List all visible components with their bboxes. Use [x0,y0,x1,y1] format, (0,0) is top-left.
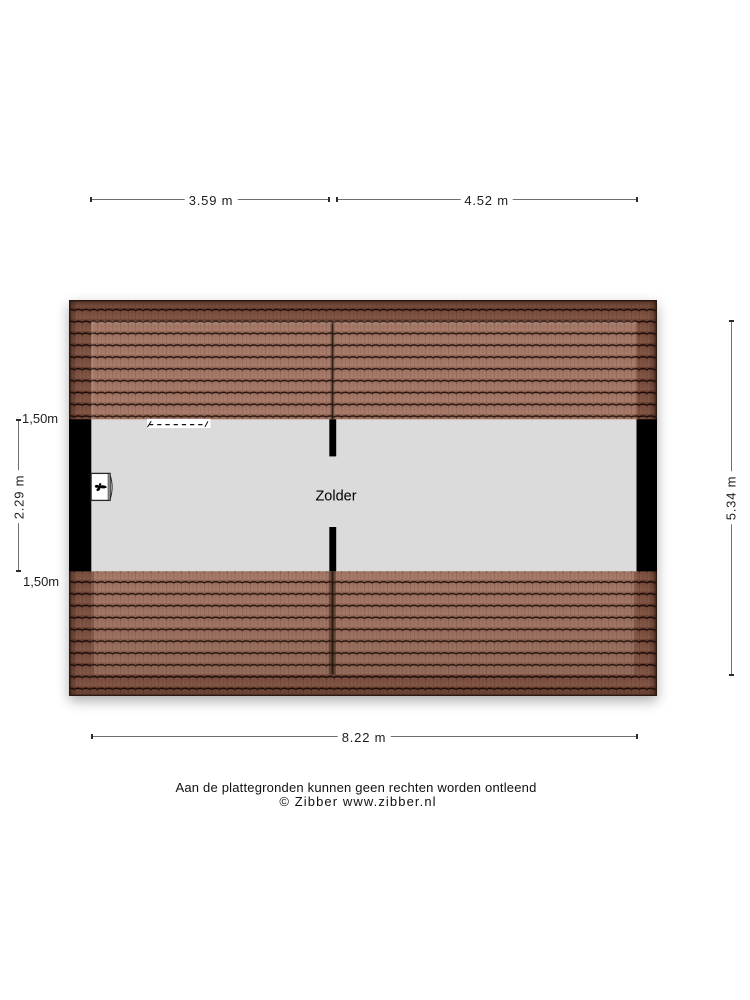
svg-text:Zolder: Zolder [315,489,356,505]
